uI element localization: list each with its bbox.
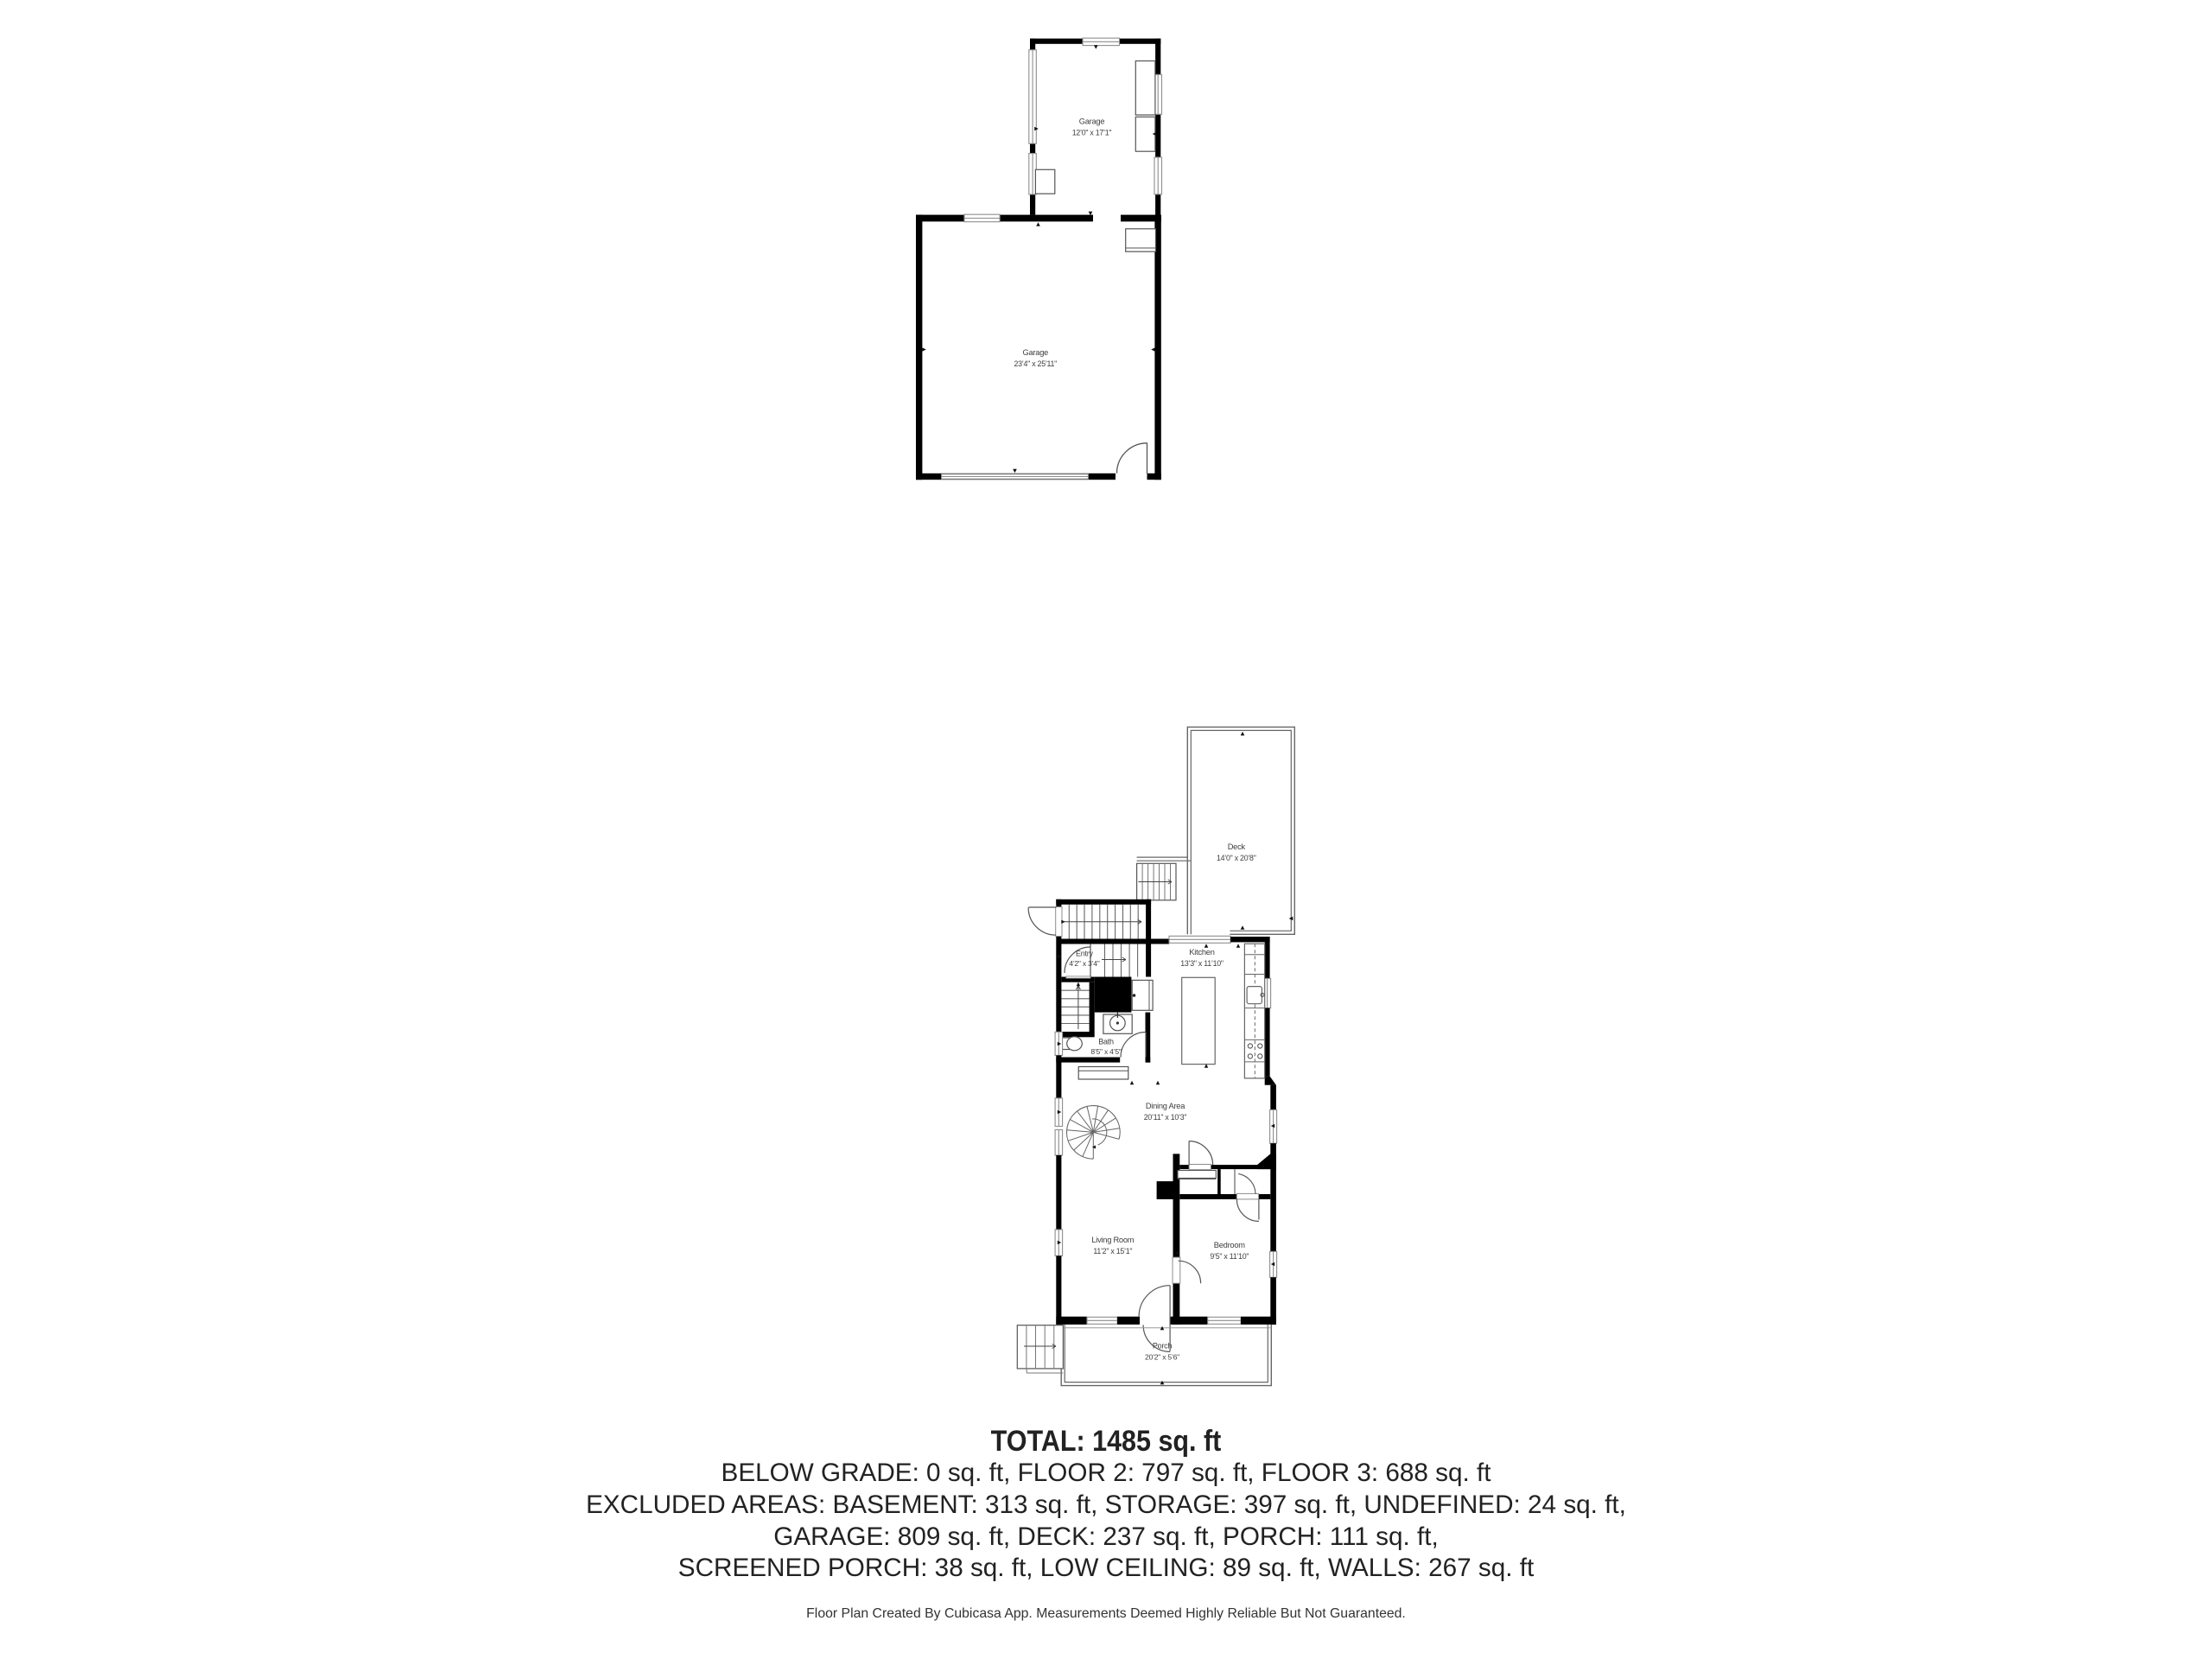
svg-text:8’5" x 4’5": 8’5" x 4’5" — [1090, 1047, 1122, 1056]
svg-text:14’0" x 20’8": 14’0" x 20’8" — [1217, 854, 1256, 862]
svg-text:Deck: Deck — [1228, 842, 1246, 851]
svg-text:Porch: Porch — [1153, 1342, 1173, 1351]
svg-text:Entry: Entry — [1076, 950, 1094, 958]
svg-text:11’2" x 15’1": 11’2" x 15’1" — [1093, 1247, 1132, 1255]
svg-text:Bath: Bath — [1098, 1038, 1114, 1046]
svg-text:Garage: Garage — [1079, 118, 1105, 126]
svg-text:Kitchen: Kitchen — [1189, 948, 1214, 957]
svg-text:Living Room: Living Room — [1091, 1236, 1134, 1244]
svg-text:12’0" x 17’1": 12’0" x 17’1" — [1072, 129, 1112, 137]
svg-text:13’3" x 11’10": 13’3" x 11’10" — [1180, 959, 1224, 968]
svg-text:9’5" x 11’10": 9’5" x 11’10" — [1210, 1252, 1249, 1261]
svg-text:20’2" x 5’6": 20’2" x 5’6" — [1145, 1353, 1179, 1362]
svg-text:23’4" x 25’11": 23’4" x 25’11" — [1014, 359, 1058, 368]
svg-text:20’11" x 10’3": 20’11" x 10’3" — [1144, 1113, 1187, 1122]
svg-text:Bedroom: Bedroom — [1214, 1241, 1245, 1249]
svg-text:Dining Area: Dining Area — [1146, 1102, 1185, 1110]
svg-text:4’2" x 3’4": 4’2" x 3’4" — [1069, 959, 1100, 968]
svg-text:Garage: Garage — [1023, 348, 1049, 357]
